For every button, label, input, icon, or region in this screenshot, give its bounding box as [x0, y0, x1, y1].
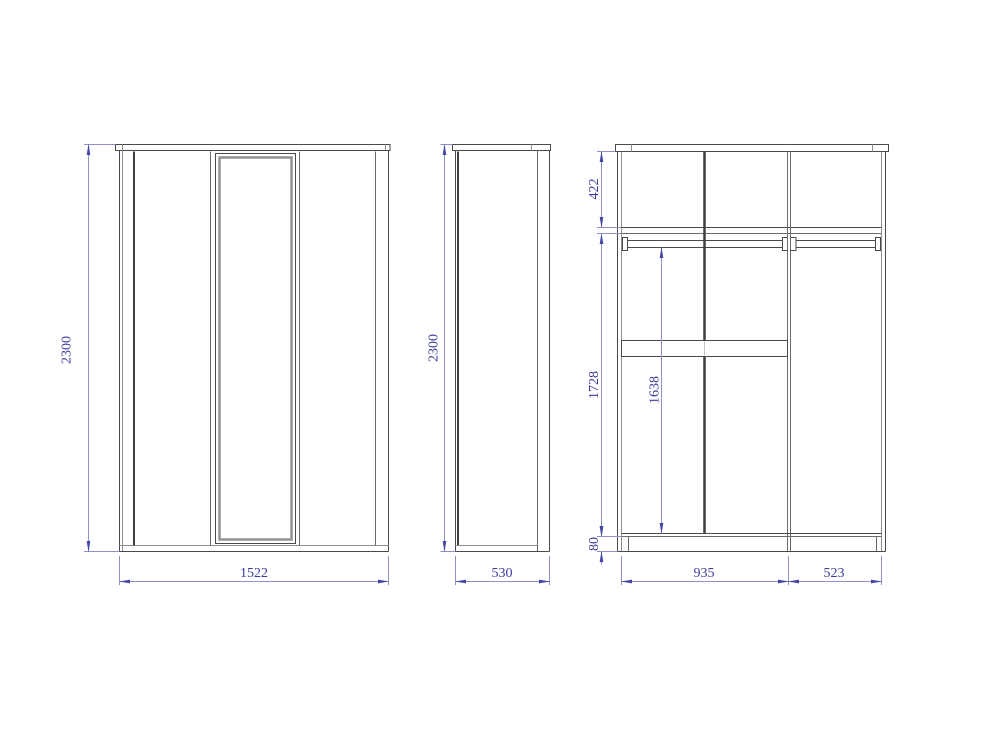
- rail-bracket: [876, 238, 881, 251]
- interior-view-dimensions: 422 1728 1638 80 935 523: [587, 152, 882, 586]
- mirror-door: [216, 154, 296, 544]
- top-section-dim-label: 422: [587, 179, 602, 200]
- wardrobe-drawing: 2300 1522 2300 530: [0, 0, 1000, 750]
- plinth-dim-label: 80: [587, 537, 602, 551]
- side-height-dim-label: 2300: [426, 334, 441, 362]
- interior-view: [616, 145, 889, 552]
- front-height-dim-label: 2300: [59, 336, 74, 364]
- lower-section-dim-label: 1728: [587, 371, 602, 399]
- right-section-dim-label: 523: [824, 566, 845, 581]
- technical-drawing-canvas: 2300 1522 2300 530: [0, 0, 1000, 750]
- side-view-dimensions: 2300 530: [426, 145, 549, 586]
- side-view: [453, 145, 551, 552]
- left-section-dim-label: 935: [694, 566, 715, 581]
- front-view: [116, 145, 391, 552]
- front-top-panel: [116, 145, 391, 151]
- rail-clearance-dim-label: 1638: [647, 376, 662, 404]
- interior-top-panel: [616, 145, 889, 152]
- side-top-panel: [453, 145, 551, 151]
- rail-bracket: [783, 238, 788, 251]
- side-depth-dim-label: 530: [492, 566, 513, 581]
- rail-bracket: [791, 238, 797, 251]
- front-width-dim-label: 1522: [240, 566, 268, 581]
- right-hanging-rail: [796, 241, 876, 248]
- rail-bracket: [623, 238, 628, 251]
